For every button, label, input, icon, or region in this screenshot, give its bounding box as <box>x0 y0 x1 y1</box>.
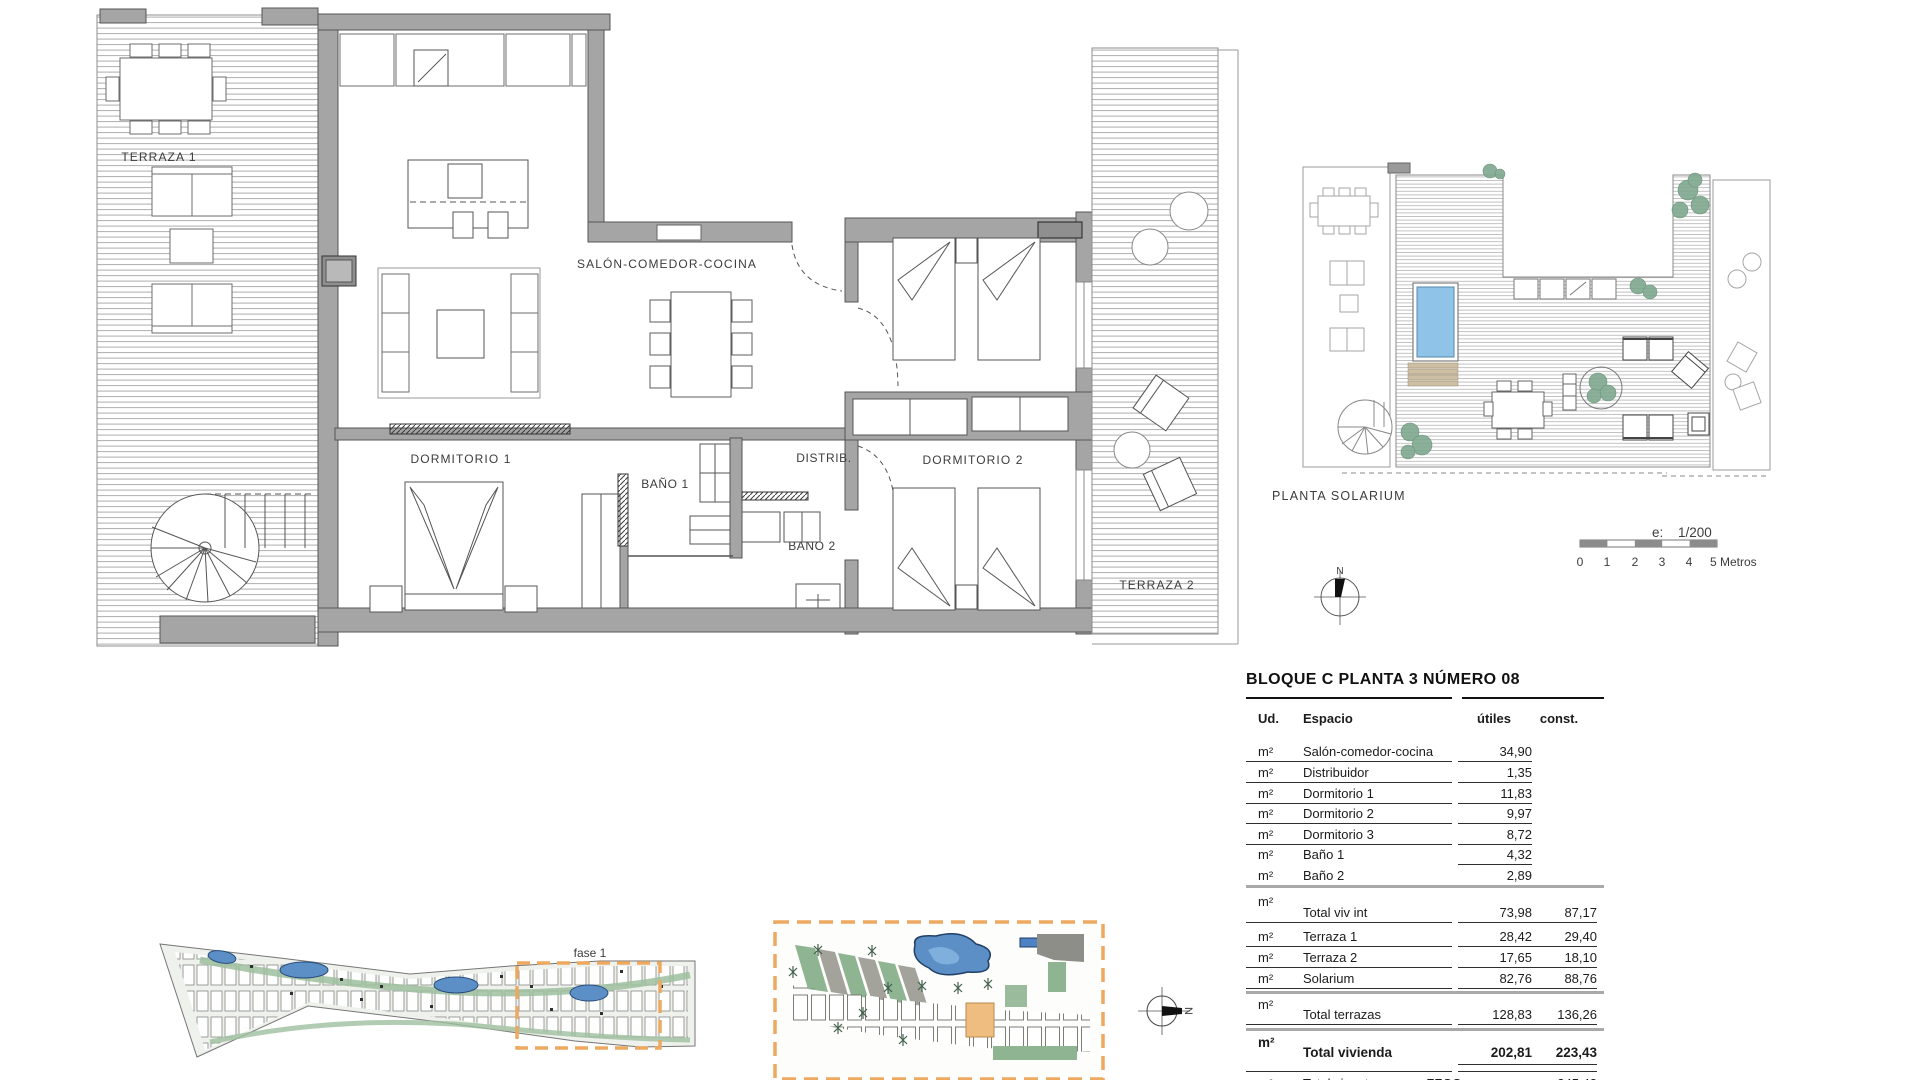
salon-dining-table <box>650 292 752 397</box>
col-ud: Ud. <box>1258 711 1284 726</box>
row-unit: m² <box>1258 868 1284 883</box>
row-const: 87,17 <box>1521 905 1597 920</box>
row-espacio: Baño 2 <box>1303 868 1344 883</box>
row-espacio: Terraza 1 <box>1303 929 1357 944</box>
north-compass-icon: N <box>1314 566 1366 625</box>
row-unit: m² <box>1258 971 1284 986</box>
row-const: 136,26 <box>1521 1007 1597 1022</box>
round-stool <box>1132 229 1168 265</box>
dormitorio-2-label: DORMITORIO 2 <box>923 453 1024 467</box>
solarium-plan: PLANTA SOLARIUM e: 1/200 0 1 2 3 4 5 Met… <box>1272 163 1770 625</box>
scale-prefix: e: <box>1652 525 1663 540</box>
row-espacio: Solarium <box>1303 971 1354 986</box>
row-utiles: 8,72 <box>1456 827 1532 842</box>
row-unit: m² <box>1258 744 1284 759</box>
fase-1-label: fase 1 <box>574 946 607 960</box>
scale-unit: 5 Metros <box>1710 555 1757 569</box>
salon-label: SALÓN-COMEDOR-COCINA <box>577 256 757 271</box>
row-unit: m² <box>1258 827 1284 842</box>
row-espacio: Dormitorio 3 <box>1303 827 1374 842</box>
highlighted-unit <box>966 1003 994 1037</box>
scale-ratio: 1/200 <box>1678 525 1712 540</box>
table-title: BLOQUE C PLANTA 3 NÚMERO 08 <box>1246 671 1520 689</box>
col-espacio: Espacio <box>1303 711 1353 726</box>
solarium-right-terrace <box>1713 180 1770 470</box>
site-plan-overview: fase 1 <box>160 944 695 1057</box>
kitchen <box>340 34 586 238</box>
scale-tick: 2 <box>1632 555 1639 569</box>
scale-tick: 0 <box>1577 555 1584 569</box>
row-unit: m² <box>1258 997 1284 1012</box>
row-espacio-partial: Total viv + terrazas + ZZCC <box>1303 1076 1461 1080</box>
row-utiles: 34,90 <box>1456 744 1532 759</box>
col-const: const. <box>1521 711 1597 726</box>
row-espacio: Baño 1 <box>1303 847 1344 862</box>
scale-bar: e: 1/200 0 1 2 3 4 5 Metros <box>1577 525 1757 569</box>
compass-n-label: N <box>1336 566 1343 577</box>
round-table <box>1114 432 1150 468</box>
bathroom-1-fixtures <box>618 444 733 556</box>
terraza-2: TERRAZA 2 <box>1092 48 1238 644</box>
row-espacio: Total viv int <box>1303 905 1367 920</box>
scale-tick: 1 <box>1604 555 1611 569</box>
row-unit: m² <box>1258 894 1284 909</box>
row-unit: m² <box>1258 806 1284 821</box>
row-unit: m² <box>1258 950 1284 965</box>
terraza-1: TERRAZA 1 <box>97 8 318 646</box>
main-floor-plan: TERRAZA 1 <box>97 8 1238 646</box>
row-const: 223,43 <box>1521 1045 1597 1060</box>
row-espacio: Dormitorio 1 <box>1303 786 1374 801</box>
round-stool <box>1170 192 1208 230</box>
row-espacio: Terraza 2 <box>1303 950 1357 965</box>
wardrobe-sliding-door <box>390 424 570 434</box>
plan-drawing: TERRAZA 1 <box>0 0 1920 1080</box>
built-in-wardrobes <box>853 397 1068 435</box>
row-utiles: 9,97 <box>1456 806 1532 821</box>
north-compass-icon-site: N <box>1138 987 1194 1035</box>
compass-n-label-site: N <box>1182 1007 1194 1015</box>
scale-tick: 3 <box>1659 555 1666 569</box>
distrib-label: DISTRIB. <box>796 451 851 465</box>
row-const-partial: 245,43 <box>1521 1076 1597 1080</box>
row-utiles: 4,32 <box>1456 847 1532 862</box>
solarium-spiral-stair <box>1338 400 1392 454</box>
terrace-dining-table <box>106 44 226 134</box>
row-unit: m² <box>1258 847 1284 862</box>
sofa-set <box>378 268 540 398</box>
row-const: 29,40 <box>1521 929 1597 944</box>
bano-1-label: BAÑO 1 <box>641 477 689 491</box>
double-bed <box>370 482 620 612</box>
solarium-pool <box>1408 283 1458 386</box>
row-espacio: Total vivienda <box>1303 1045 1392 1060</box>
solarium-title: PLANTA SOLARIUM <box>1272 489 1406 503</box>
row-espacio: Dormitorio 2 <box>1303 806 1374 821</box>
floor-plan-sheet: TERRAZA 1 <box>0 0 1920 1080</box>
twin-beds-top <box>893 238 1040 360</box>
row-unit: m² <box>1258 1035 1284 1050</box>
row-espacio: Total terrazas <box>1303 1007 1381 1022</box>
terraza-1-label: TERRAZA 1 <box>121 150 196 164</box>
scale-tick: 4 <box>1686 555 1693 569</box>
kitchen-island <box>408 160 528 238</box>
site-plan-detail: N <box>775 922 1194 1079</box>
dormitorio-1-label: DORMITORIO 1 <box>411 452 512 466</box>
row-utiles: 1,35 <box>1456 765 1532 780</box>
row-utiles: 11,83 <box>1456 786 1532 801</box>
row-unit: m² <box>1258 786 1284 801</box>
terraza-2-label: TERRAZA 2 <box>1119 578 1194 592</box>
row-unit: m² <box>1258 765 1284 780</box>
row-utiles: 2,89 <box>1456 868 1532 883</box>
row-espacio: Distribuidor <box>1303 765 1369 780</box>
row-unit: m² <box>1258 929 1284 944</box>
row-const: 88,76 <box>1521 971 1597 986</box>
twin-beds-bottom <box>893 488 1040 610</box>
row-espacio: Salón-comedor-cocina <box>1303 744 1433 759</box>
row-unit: m² <box>1258 1076 1284 1080</box>
row-const: 18,10 <box>1521 950 1597 965</box>
